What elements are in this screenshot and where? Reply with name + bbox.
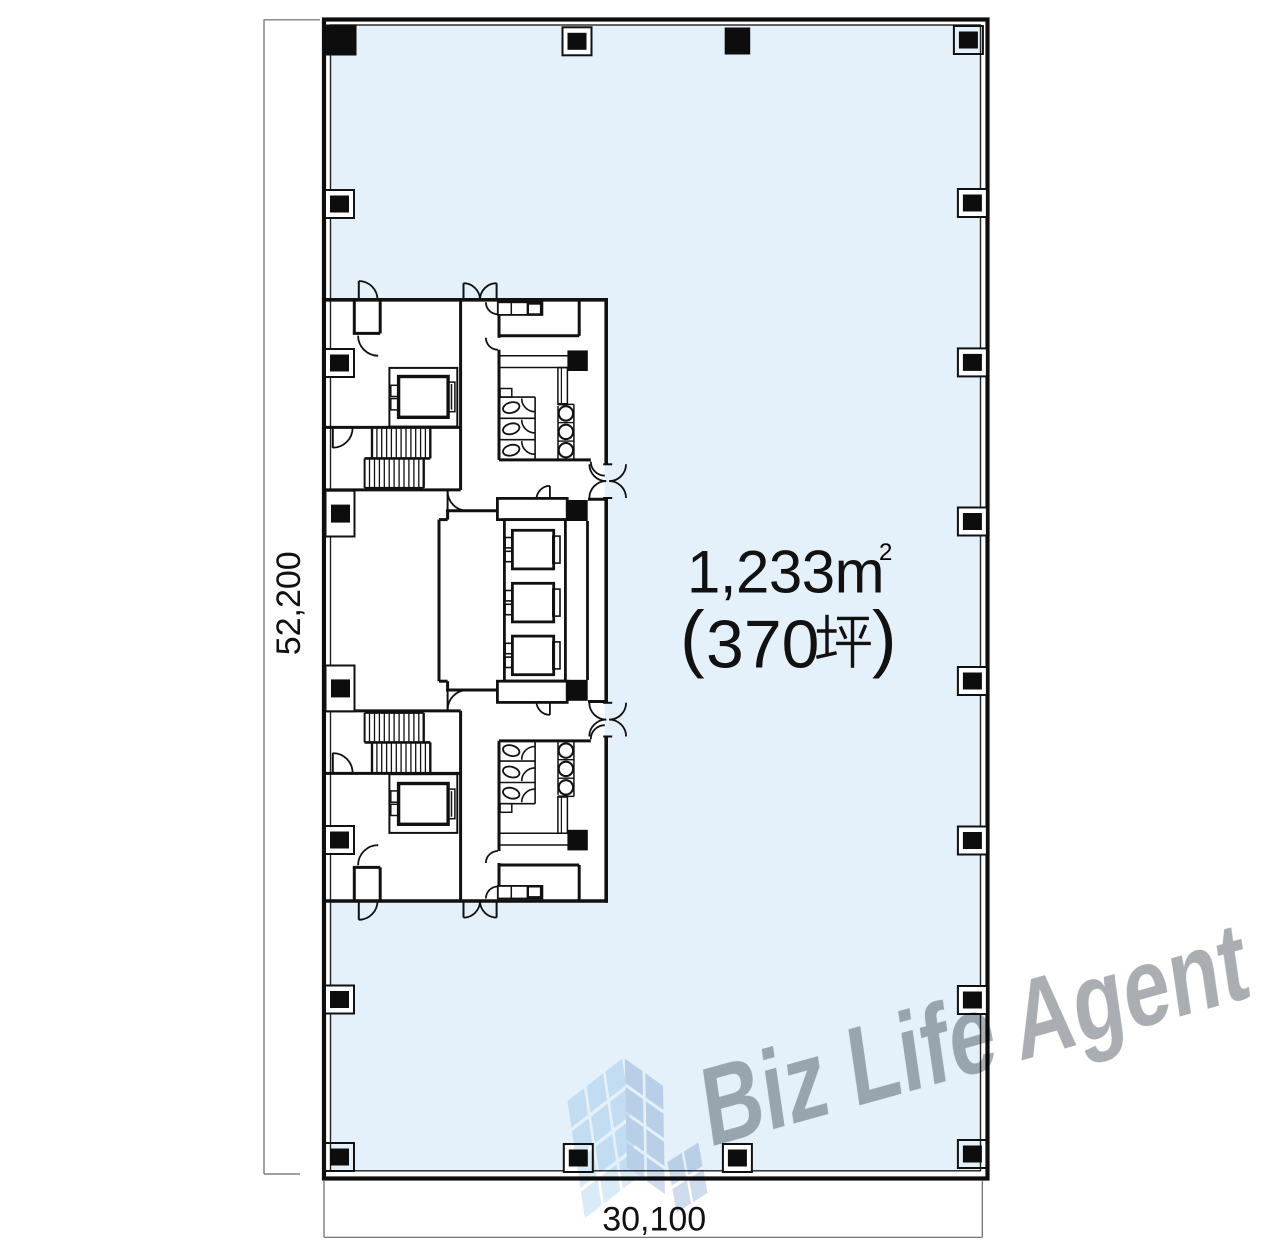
svg-text:52,200: 52,200: [270, 551, 308, 655]
svg-text:): ): [872, 596, 897, 679]
svg-text:(: (: [680, 596, 705, 679]
svg-text:1,233m: 1,233m: [687, 539, 884, 606]
svg-text:30,100: 30,100: [602, 1200, 706, 1238]
svg-text:370: 370: [706, 607, 819, 683]
svg-text:2: 2: [879, 539, 892, 566]
